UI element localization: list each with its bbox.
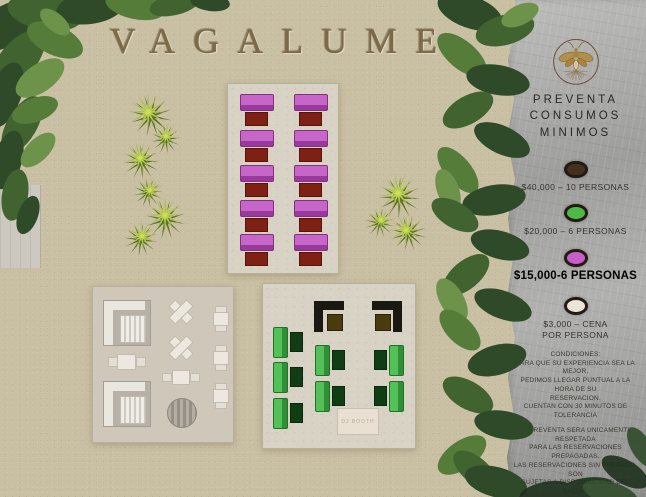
booth-sofa (240, 234, 274, 251)
booth-sofa (273, 327, 288, 358)
magenta-booth[interactable] (240, 200, 274, 217)
tier-label-20000: $20,000 – 6 PERSONAS (524, 226, 627, 236)
green-booth[interactable] (273, 327, 303, 356)
chair (190, 373, 200, 382)
tier-label-3000-line2: POR PERSONA (542, 330, 609, 340)
table (213, 389, 229, 403)
green-booth[interactable] (374, 381, 404, 410)
booth-table (332, 350, 345, 370)
green-booth[interactable] (315, 345, 345, 374)
page-title: VAGALUME (96, 20, 454, 62)
booth-table (299, 252, 322, 266)
venue-map: VAGALUME (0, 0, 646, 497)
tier-label-15000-highlighted: $15,000-6 PERSONAS (514, 270, 637, 282)
conditions-text: CONDICIONES: PARA QUE SU EXPERIENCIA SEA… (511, 351, 641, 497)
green-booth[interactable] (273, 398, 303, 427)
magenta-booth[interactable] (240, 165, 274, 182)
booth-sofa (240, 200, 274, 217)
table (213, 351, 229, 365)
booth-sofa (315, 381, 330, 412)
tier-dot-brown (564, 161, 588, 179)
booth-sofa (294, 200, 328, 217)
green-booth[interactable] (315, 381, 345, 410)
booth-sofa (240, 165, 274, 182)
booth-table (290, 403, 303, 423)
lounge-daybed (120, 396, 146, 424)
lounge-sofa (104, 301, 113, 345)
tier-dot-green (564, 204, 588, 222)
preventa-header: PREVENTA CONSUMOS MINIMOS (530, 92, 622, 142)
booth-sofa (294, 165, 328, 182)
black-corner-booth[interactable] (372, 301, 402, 332)
booth-sofa (294, 234, 328, 251)
small-dining-table[interactable] (213, 345, 227, 370)
small-dining-table[interactable] (108, 354, 144, 369)
booth-sofa (294, 94, 328, 111)
corner-lounge[interactable] (103, 300, 151, 346)
lounge-daybed (120, 315, 146, 343)
cross-table[interactable] (166, 297, 194, 325)
booth-sofa (294, 130, 328, 147)
booth-table (245, 183, 268, 197)
dj-booth-label: DJ BOOTH (341, 419, 374, 425)
booth-table (299, 183, 322, 197)
booth-sofa (273, 398, 288, 429)
table (172, 370, 190, 385)
booth-table (375, 314, 391, 331)
booth-sofa (393, 301, 402, 332)
magenta-booth[interactable] (240, 94, 274, 111)
magenta-booth[interactable] (294, 130, 328, 147)
cross-table[interactable] (166, 333, 194, 361)
green-booth[interactable] (273, 362, 303, 391)
magenta-booth[interactable] (294, 94, 328, 111)
booth-table (327, 314, 343, 331)
booth-table (299, 112, 322, 126)
black-corner-booth[interactable] (314, 301, 344, 332)
round-table[interactable] (167, 398, 197, 428)
chair (215, 364, 227, 371)
booth-sofa (315, 345, 330, 376)
chair (215, 325, 227, 332)
booth-table (290, 367, 303, 387)
booth-table (245, 252, 268, 266)
small-dining-table[interactable] (213, 306, 227, 331)
magenta-booth[interactable] (294, 200, 328, 217)
green-booth[interactable] (374, 345, 404, 374)
lounge-sofa (104, 382, 113, 426)
booth-table (245, 148, 268, 162)
booth-table (374, 386, 387, 406)
booth-sofa (273, 362, 288, 393)
magenta-booth[interactable] (294, 165, 328, 182)
booth-table (245, 218, 268, 232)
preventa-sidebar: PREVENTA CONSUMOS MINIMOS $40,000 – 10 P… (505, 0, 646, 497)
booth-sofa (240, 94, 274, 111)
chair (162, 373, 172, 382)
booth-table (332, 386, 345, 406)
magenta-booth[interactable] (294, 234, 328, 251)
lounge-sofa (113, 301, 145, 310)
magenta-booth[interactable] (240, 130, 274, 147)
booth-table (245, 112, 268, 126)
firefly-logo-icon (538, 37, 614, 87)
booth-sofa (314, 301, 323, 332)
booth-sofa (389, 345, 404, 376)
chair (215, 402, 227, 409)
chair (136, 357, 146, 367)
table (213, 312, 229, 326)
small-dining-table[interactable] (213, 383, 227, 408)
booth-sofa (240, 130, 274, 147)
booth-table (374, 350, 387, 370)
corner-lounge[interactable] (103, 381, 151, 427)
tier-dot-magenta (564, 249, 588, 267)
dj-booth: DJ BOOTH (337, 408, 379, 435)
small-dining-table[interactable] (162, 370, 198, 384)
table (117, 354, 136, 370)
side-deck (0, 185, 41, 268)
booth-table (299, 148, 322, 162)
magenta-booth[interactable] (240, 234, 274, 251)
lounge-sofa (113, 382, 145, 391)
booth-table (299, 218, 322, 232)
booth-table (290, 332, 303, 352)
tier-label-3000: $3,000 – CENA (543, 319, 607, 329)
tier-label-40000: $40,000 – 10 PERSONAS (522, 182, 630, 192)
booth-sofa (389, 381, 404, 412)
tier-dot-white (564, 297, 588, 315)
